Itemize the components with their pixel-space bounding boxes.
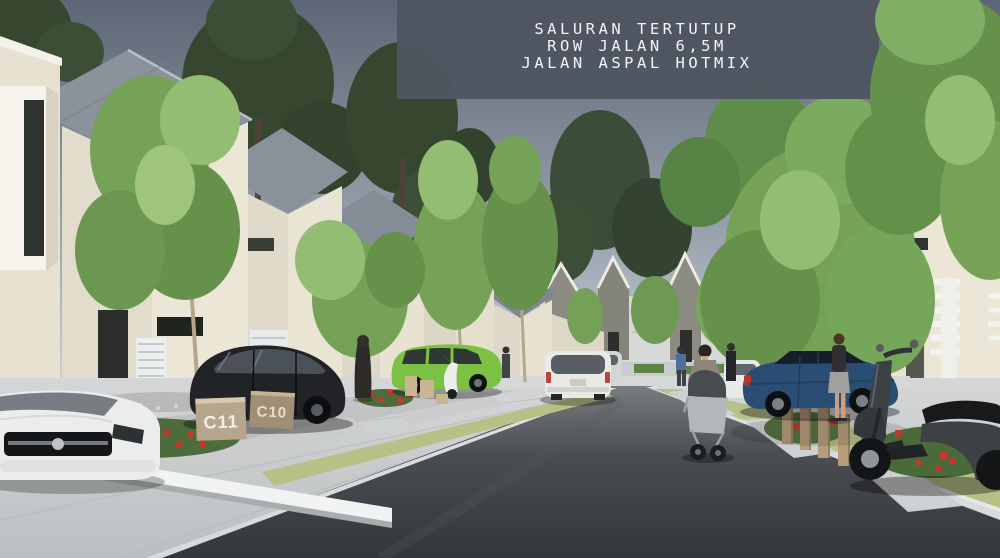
wheel-rim bbox=[772, 398, 784, 410]
stroller-wheel-hub bbox=[715, 450, 721, 456]
minivan-taillight bbox=[605, 372, 610, 383]
small-tree-canopy bbox=[631, 276, 679, 344]
scooter-wheel-rim bbox=[861, 450, 879, 468]
sign-label: C10 bbox=[256, 403, 287, 422]
stroller-wheel-hub bbox=[695, 449, 701, 455]
minivan-taillight bbox=[546, 372, 551, 383]
person-shadow bbox=[353, 398, 373, 403]
moped-wheel bbox=[447, 389, 457, 399]
small-tree-canopy bbox=[567, 288, 603, 344]
banner-line-1: SALURAN TERTUTUP bbox=[534, 20, 739, 38]
woman-by-car-shoes bbox=[834, 418, 847, 421]
distant-person-head bbox=[727, 343, 735, 351]
scooter-mirror bbox=[876, 344, 884, 352]
stroller-woman-head bbox=[699, 345, 712, 358]
tree-canopy-highlight bbox=[760, 170, 840, 270]
sign-c10: C10 bbox=[249, 391, 295, 429]
woman-by-car-skirt bbox=[828, 372, 850, 393]
distant-person-body bbox=[726, 351, 736, 381]
architectural-rendering: C11 C10 bbox=[0, 0, 1000, 558]
wheel-rim bbox=[474, 379, 482, 387]
tree-canopy bbox=[418, 140, 478, 220]
tree-canopy bbox=[295, 220, 365, 300]
left-house-1-window-slot bbox=[24, 100, 44, 256]
woman-by-car-top bbox=[832, 345, 846, 372]
stroller-body bbox=[686, 396, 728, 434]
grille-emblem bbox=[52, 438, 64, 450]
background-tree-canopy bbox=[660, 137, 740, 227]
sign-c11: C11 bbox=[195, 397, 246, 441]
standing-woman-robe bbox=[355, 340, 372, 398]
minivan-bumper bbox=[547, 387, 609, 392]
distant-person-head bbox=[503, 347, 510, 354]
distant-person-shirt bbox=[676, 354, 686, 370]
stroller-shadow bbox=[682, 453, 734, 463]
standing-woman-head bbox=[357, 335, 369, 347]
scooter-mirror bbox=[910, 340, 919, 349]
street-scene-canvas: C11 C10 bbox=[0, 0, 1000, 558]
white-car-bumper bbox=[0, 460, 156, 472]
tree-canopy-highlight bbox=[135, 145, 195, 225]
minivan-plate bbox=[570, 379, 586, 386]
woman-by-car-head bbox=[834, 334, 845, 345]
title-banner: SALURAN TERTUTUP ROW JALAN 6,5M JALAN AS… bbox=[397, 0, 879, 99]
minivan-rear-window bbox=[551, 355, 605, 374]
wheel-rim bbox=[311, 404, 323, 416]
sign-label: C11 bbox=[203, 411, 239, 432]
distant-person-body bbox=[502, 354, 510, 378]
tree-canopy bbox=[489, 136, 541, 204]
banner-line-3: JALAN ASPAL HOTMIX bbox=[522, 54, 753, 72]
left-house-3-window bbox=[244, 238, 274, 251]
banner-line-2: ROW JALAN 6,5M bbox=[547, 37, 727, 55]
left-house-1-frame-side bbox=[46, 86, 58, 270]
tree-canopy bbox=[365, 232, 425, 308]
distant-person-head bbox=[677, 346, 685, 354]
stroller-woman-neck bbox=[702, 356, 708, 360]
wheel-rim bbox=[856, 395, 868, 407]
tree-canopy-highlight bbox=[925, 75, 995, 165]
